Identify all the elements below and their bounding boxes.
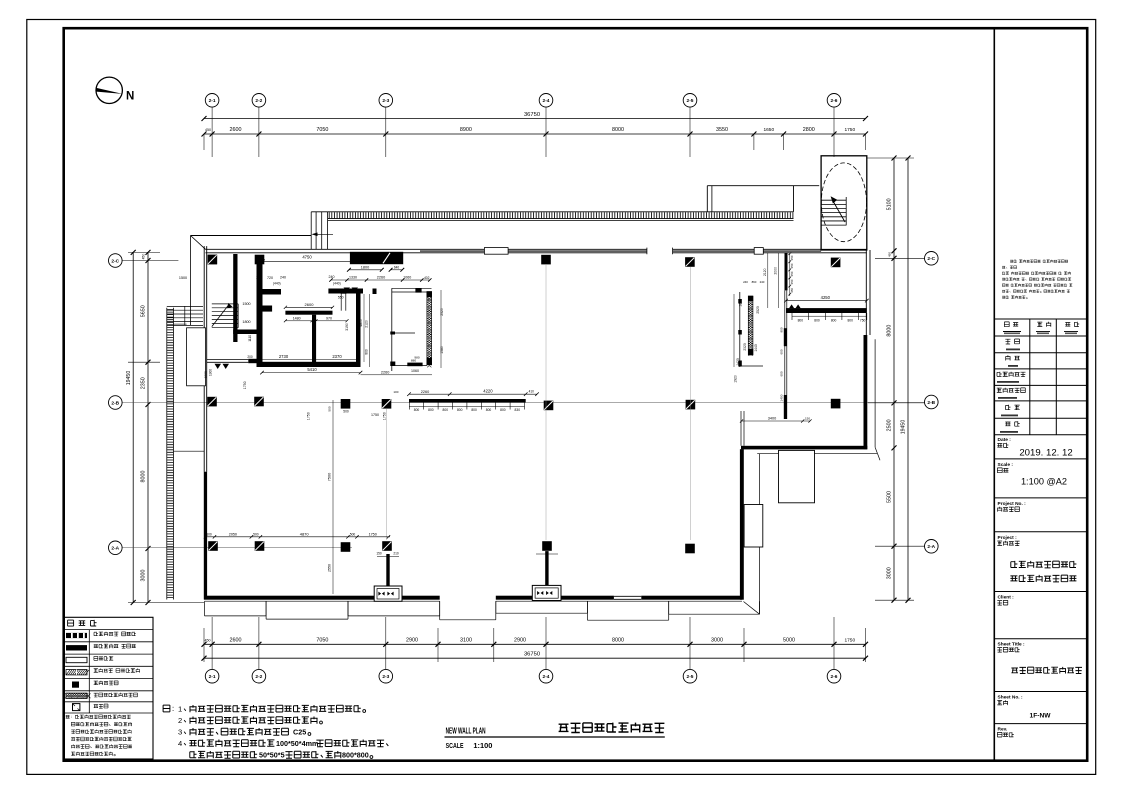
svg-text:8900: 8900 [460, 127, 472, 133]
svg-text:830: 830 [515, 408, 521, 412]
svg-text:3000: 3000 [711, 637, 723, 643]
svg-text:200: 200 [247, 355, 253, 359]
svg-text:3400: 3400 [768, 416, 776, 420]
svg-text:2900: 2900 [514, 637, 526, 643]
svg-text:7050: 7050 [316, 127, 328, 133]
svg-text:2-1: 2-1 [209, 98, 216, 104]
svg-text:800: 800 [486, 408, 492, 412]
svg-text:1500: 1500 [179, 276, 187, 280]
svg-text:Sheet Title :: Sheet Title : [998, 641, 1026, 647]
svg-text:800: 800 [457, 408, 463, 412]
svg-text:2900: 2900 [406, 637, 418, 643]
svg-text:240: 240 [280, 275, 286, 279]
svg-text:1:100 @A2: 1:100 @A2 [1021, 477, 1067, 487]
svg-text:N: N [126, 91, 134, 103]
svg-text:1000: 1000 [204, 371, 208, 378]
svg-text:450: 450 [888, 252, 892, 257]
svg-text:1800: 1800 [242, 320, 250, 324]
svg-text:2120: 2120 [763, 268, 767, 276]
svg-text:860: 860 [752, 280, 757, 284]
svg-text:2: 2 [178, 716, 182, 725]
svg-text:5410: 5410 [307, 367, 317, 372]
svg-text:4870: 4870 [300, 531, 310, 536]
svg-text:800: 800 [443, 408, 449, 412]
svg-text:36750: 36750 [524, 112, 540, 118]
svg-text:8000: 8000 [612, 637, 624, 643]
svg-text:500: 500 [343, 410, 349, 414]
svg-text:880: 880 [411, 359, 416, 363]
svg-text:2260: 2260 [381, 370, 389, 374]
svg-text:800: 800 [364, 349, 368, 355]
svg-text:900: 900 [780, 327, 784, 332]
svg-text:1650: 1650 [763, 127, 774, 133]
svg-text:3: 3 [178, 728, 182, 737]
svg-text:4800: 4800 [359, 319, 363, 327]
svg-text:1750: 1750 [844, 637, 855, 643]
svg-text:2600: 2600 [230, 127, 242, 133]
svg-text:8000: 8000 [887, 325, 893, 337]
svg-text:2520: 2520 [440, 308, 444, 316]
svg-text:1580: 1580 [440, 346, 444, 354]
svg-text:2-3: 2-3 [382, 98, 389, 104]
svg-text:3000: 3000 [141, 570, 147, 582]
svg-text:800: 800 [847, 319, 853, 323]
svg-text:720: 720 [267, 276, 273, 280]
svg-text:3190: 3190 [345, 323, 349, 331]
svg-text:19450: 19450 [901, 420, 907, 435]
svg-text:2550: 2550 [328, 564, 332, 572]
svg-text:1900: 1900 [209, 369, 213, 376]
svg-text:2-3: 2-3 [382, 674, 389, 680]
svg-text:19450: 19450 [126, 371, 132, 386]
svg-text:2-C: 2-C [927, 256, 935, 262]
svg-text:3100: 3100 [460, 637, 472, 643]
svg-text:1400: 1400 [780, 394, 784, 401]
svg-text:1920: 1920 [734, 375, 738, 383]
svg-text:Sheet No. :: Sheet No. : [998, 694, 1023, 700]
svg-text:410: 410 [529, 390, 535, 394]
svg-text:4250: 4250 [821, 295, 831, 300]
svg-text:450: 450 [790, 271, 794, 276]
svg-text:Date :: Date : [998, 437, 1012, 443]
svg-text:1060: 1060 [411, 369, 419, 373]
svg-text:1420: 1420 [736, 358, 740, 366]
svg-text:450: 450 [790, 255, 794, 260]
svg-text:600: 600 [780, 349, 784, 354]
svg-text:2730: 2730 [279, 354, 289, 359]
svg-text:Project :: Project : [998, 535, 1018, 541]
svg-text:500: 500 [328, 406, 332, 411]
svg-text:1750: 1750 [844, 127, 855, 133]
svg-text:2-6: 2-6 [831, 674, 838, 680]
svg-text:2050: 2050 [229, 532, 237, 536]
svg-text:2260: 2260 [421, 390, 429, 394]
svg-text:150: 150 [376, 552, 382, 556]
svg-text:240: 240 [329, 275, 335, 279]
svg-text:800: 800 [814, 319, 820, 323]
svg-text:240: 240 [760, 280, 765, 284]
svg-text:3550: 3550 [716, 127, 728, 133]
svg-text:2350: 2350 [141, 377, 147, 389]
svg-text:2-B: 2-B [927, 400, 935, 406]
svg-text:450: 450 [205, 128, 211, 132]
svg-text:2800: 2800 [803, 127, 815, 133]
svg-text:200: 200 [256, 275, 262, 279]
svg-text:2370: 2370 [332, 354, 342, 359]
svg-text:1640: 1640 [739, 299, 743, 307]
svg-text:2019. 12. 12: 2019. 12. 12 [1019, 448, 1072, 459]
svg-text:2-1: 2-1 [209, 674, 216, 680]
svg-text:2-5: 2-5 [687, 674, 694, 680]
svg-text:1750: 1750 [369, 532, 377, 536]
svg-text:800: 800 [831, 319, 837, 323]
svg-text:210: 210 [393, 552, 399, 556]
svg-text:NEW WALL PLAN: NEW WALL PLAN [446, 727, 486, 736]
svg-text:Rev.: Rev. [998, 726, 1008, 732]
svg-text:2260: 2260 [377, 275, 385, 279]
svg-text:1: 1 [178, 705, 182, 714]
svg-text:1F-NW: 1F-NW [1030, 713, 1052, 720]
svg-text:2120: 2120 [364, 320, 368, 328]
svg-text:2-A: 2-A [927, 544, 935, 550]
svg-text:5100: 5100 [887, 198, 893, 210]
svg-text:500: 500 [253, 532, 259, 536]
svg-text:2-2: 2-2 [255, 98, 262, 104]
svg-text:970: 970 [326, 316, 332, 320]
svg-text:1500: 1500 [242, 302, 250, 306]
svg-text:800: 800 [500, 408, 506, 412]
svg-text:5000: 5000 [783, 637, 795, 643]
svg-text:2600: 2600 [230, 637, 242, 643]
svg-text:2320: 2320 [743, 343, 747, 351]
svg-text:1750: 1750 [307, 412, 311, 420]
svg-text:5650: 5650 [141, 305, 147, 317]
svg-text:450: 450 [790, 279, 794, 284]
svg-text:8000: 8000 [141, 471, 147, 483]
svg-text:600: 600 [780, 371, 784, 376]
svg-text:800: 800 [798, 319, 804, 323]
svg-text:1950: 1950 [264, 290, 272, 294]
svg-text:50*50*5: 50*50*5 [259, 751, 285, 760]
svg-text:(440): (440) [333, 281, 341, 285]
svg-text:1480: 1480 [293, 316, 301, 320]
svg-text:C25: C25 [293, 728, 306, 737]
svg-text:2-4: 2-4 [543, 98, 550, 104]
svg-text:100*50*4mm: 100*50*4mm [276, 739, 318, 748]
svg-text:1440: 1440 [754, 344, 758, 352]
svg-text:1110: 1110 [248, 335, 252, 342]
svg-text:402: 402 [424, 276, 430, 280]
svg-text:7500: 7500 [328, 473, 332, 481]
svg-text:2600: 2600 [305, 302, 315, 307]
svg-text:Project No. :: Project No. : [998, 501, 1027, 507]
svg-text:3000: 3000 [887, 567, 893, 579]
svg-text:8000: 8000 [612, 127, 624, 133]
svg-text:640: 640 [394, 265, 400, 269]
svg-text:150: 150 [805, 417, 810, 421]
svg-text:2-C: 2-C [111, 258, 119, 264]
svg-text:800: 800 [471, 408, 477, 412]
svg-text:1800: 1800 [361, 265, 369, 269]
svg-text:2-4: 2-4 [543, 674, 550, 680]
svg-text:5500: 5500 [887, 491, 893, 503]
svg-text:2-A: 2-A [111, 546, 119, 552]
svg-text:1:100: 1:100 [473, 743, 492, 750]
svg-text:36750: 36750 [524, 652, 540, 658]
svg-text:2520: 2520 [756, 306, 760, 314]
svg-text:2-2: 2-2 [255, 674, 262, 680]
svg-text:800*800: 800*800 [342, 751, 369, 760]
svg-text:500: 500 [350, 532, 356, 536]
svg-text:800: 800 [428, 408, 434, 412]
svg-text:1330: 1330 [349, 275, 357, 279]
svg-text:450: 450 [790, 263, 794, 268]
svg-text:2-B: 2-B [111, 400, 119, 406]
svg-text:2-5: 2-5 [687, 98, 694, 104]
svg-text:7050: 7050 [316, 637, 328, 643]
svg-text:450: 450 [790, 288, 794, 293]
svg-text:(440): (440) [273, 281, 281, 285]
svg-text:2000: 2000 [774, 267, 778, 275]
svg-text:1750: 1750 [371, 413, 379, 417]
svg-text:SCALE: SCALE [446, 743, 464, 750]
svg-text:4750: 4750 [302, 254, 312, 259]
svg-text:4220: 4220 [483, 389, 493, 394]
svg-text:2-6: 2-6 [831, 98, 838, 104]
svg-text:550: 550 [338, 296, 344, 300]
svg-text:800: 800 [414, 408, 420, 412]
svg-text:2500: 2500 [887, 419, 893, 431]
svg-text:240: 240 [743, 280, 748, 284]
svg-text:500: 500 [206, 532, 212, 536]
svg-text:450: 450 [142, 254, 146, 260]
svg-text:4: 4 [178, 739, 182, 748]
svg-text:1750: 1750 [243, 381, 247, 389]
svg-text:Client :: Client : [998, 594, 1015, 600]
svg-text:450: 450 [205, 638, 211, 642]
svg-text:100: 100 [393, 390, 398, 394]
svg-text:Scale :: Scale : [998, 462, 1014, 468]
svg-text:1750: 1750 [382, 412, 386, 420]
svg-text:750: 750 [860, 319, 866, 323]
